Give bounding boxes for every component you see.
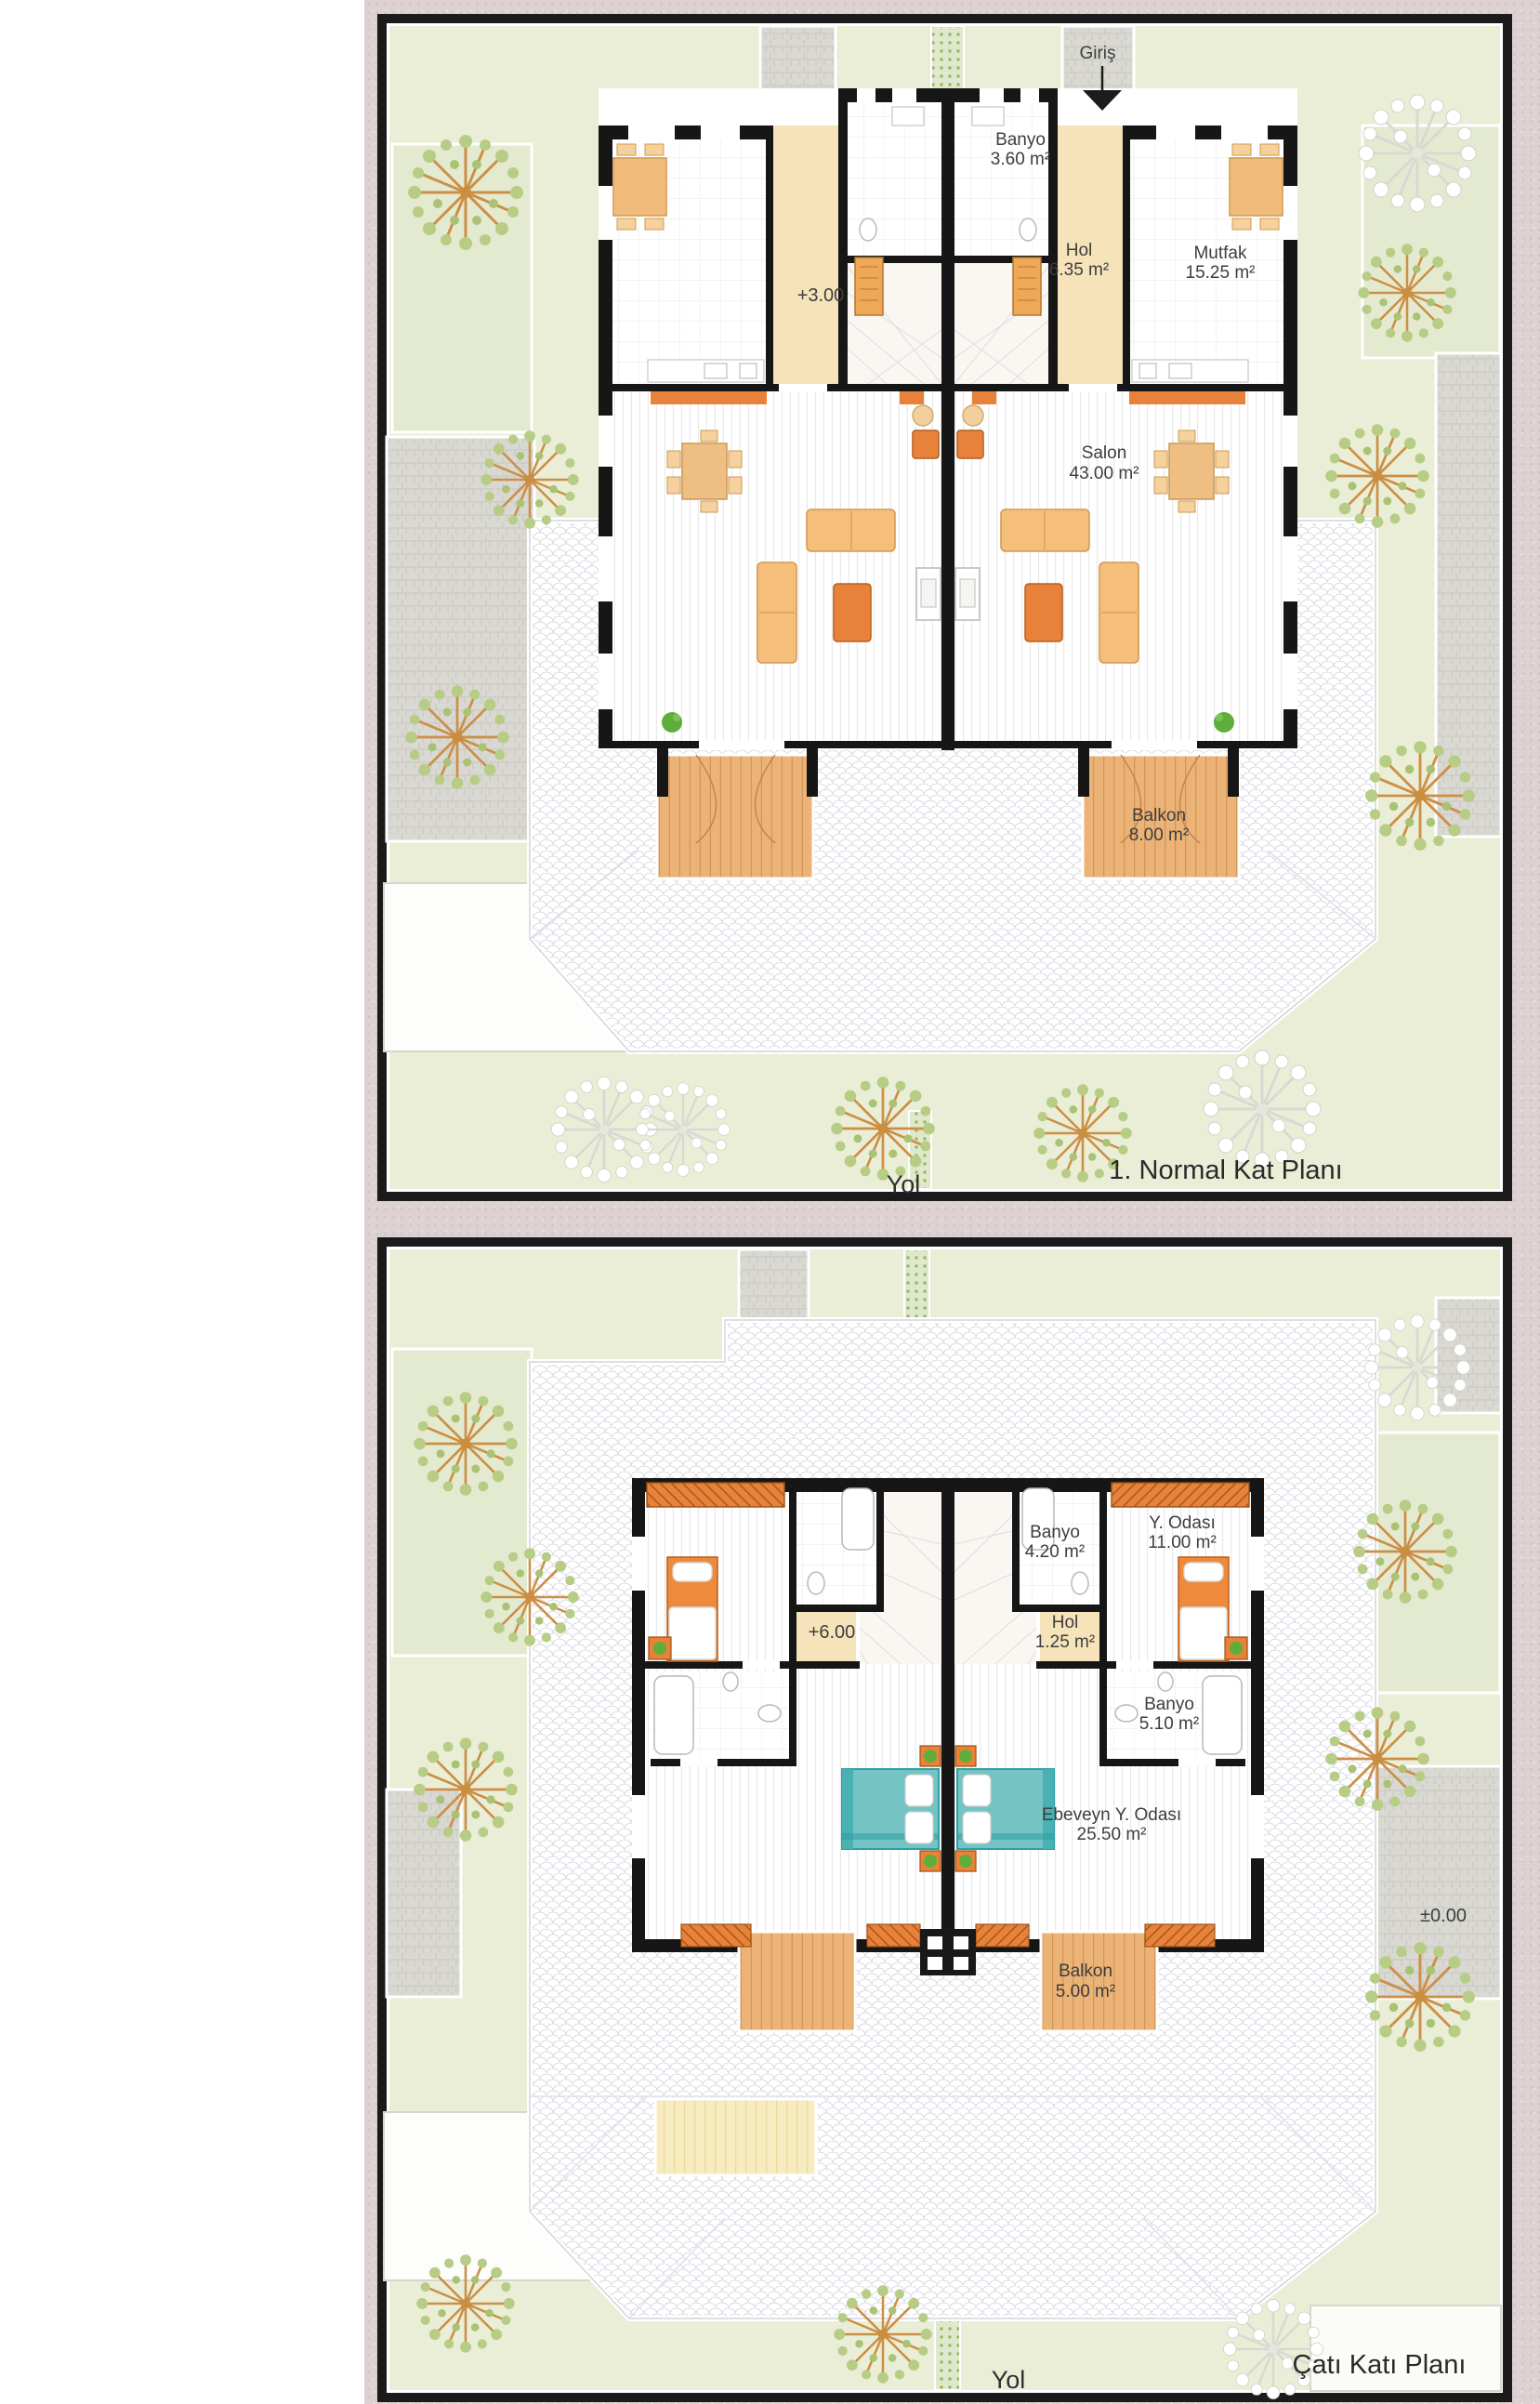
balkon-area: 5.00 m²: [1056, 1982, 1115, 2001]
balkon-label: Balkon: [1132, 806, 1186, 826]
plan-cati-kati: Banyo 4.20 m² Y. Odası 11.00 m² Hol 1.25…: [377, 1237, 1512, 2402]
level-label: +6.00: [809, 1622, 856, 1643]
plan-sheet: Giriş Banyo 3.60 m² Hol 6.35 m² Mutfak 1…: [0, 0, 1540, 2404]
hol-label: Hol: [1066, 241, 1093, 260]
party-wall: [941, 88, 954, 750]
banyo-area: 3.60 m²: [991, 150, 1050, 169]
hol-label: Hol: [1052, 1613, 1079, 1632]
level-label: +3.00: [797, 285, 845, 306]
ground-level-label: ±0.00: [1420, 1906, 1467, 1926]
plan2-building: [632, 1478, 1264, 2031]
plan1-title: 1. Normal Kat Planı: [1109, 1156, 1342, 1185]
hol-area: 1.25 m²: [1035, 1632, 1095, 1652]
road-label: Yol: [992, 2366, 1026, 2394]
mutfak-area: 15.25 m²: [1186, 263, 1256, 283]
mutfak-label: Mutfak: [1193, 244, 1247, 263]
plan2-title: Çatı Katı Planı: [1293, 2350, 1467, 2380]
banyo-label: Banyo: [995, 130, 1046, 150]
banyo-ust-area: 4.20 m²: [1025, 1542, 1085, 1562]
salon-area: 43.00 m²: [1070, 464, 1139, 483]
party-wall: [941, 1478, 954, 1952]
ebeveyn-label: Ebeveyn Y. Odası: [1042, 1805, 1181, 1825]
roof-skylight: [655, 2099, 816, 2175]
y-odasi-area: 11.00 m²: [1148, 1533, 1217, 1552]
y-odasi-label: Y. Odası: [1149, 1513, 1215, 1533]
hol-area: 6.35 m²: [1049, 260, 1109, 280]
banyo-alt-label: Banyo: [1144, 1695, 1194, 1714]
plan-normal-kat: Giriş Banyo 3.60 m² Hol 6.35 m² Mutfak 1…: [377, 14, 1512, 1201]
chimney: [920, 1929, 976, 1975]
balkon-area: 8.00 m²: [1129, 826, 1189, 845]
banyo-alt-area: 5.10 m²: [1139, 1714, 1199, 1734]
banyo-ust-label: Banyo: [1030, 1523, 1080, 1542]
entrance-label: Giriş: [1079, 44, 1115, 63]
road-label: Yol: [887, 1170, 921, 1198]
ebeveyn-area: 25.50 m²: [1077, 1825, 1147, 1844]
salon-label: Salon: [1082, 443, 1127, 463]
balkon-label: Balkon: [1059, 1962, 1112, 1981]
